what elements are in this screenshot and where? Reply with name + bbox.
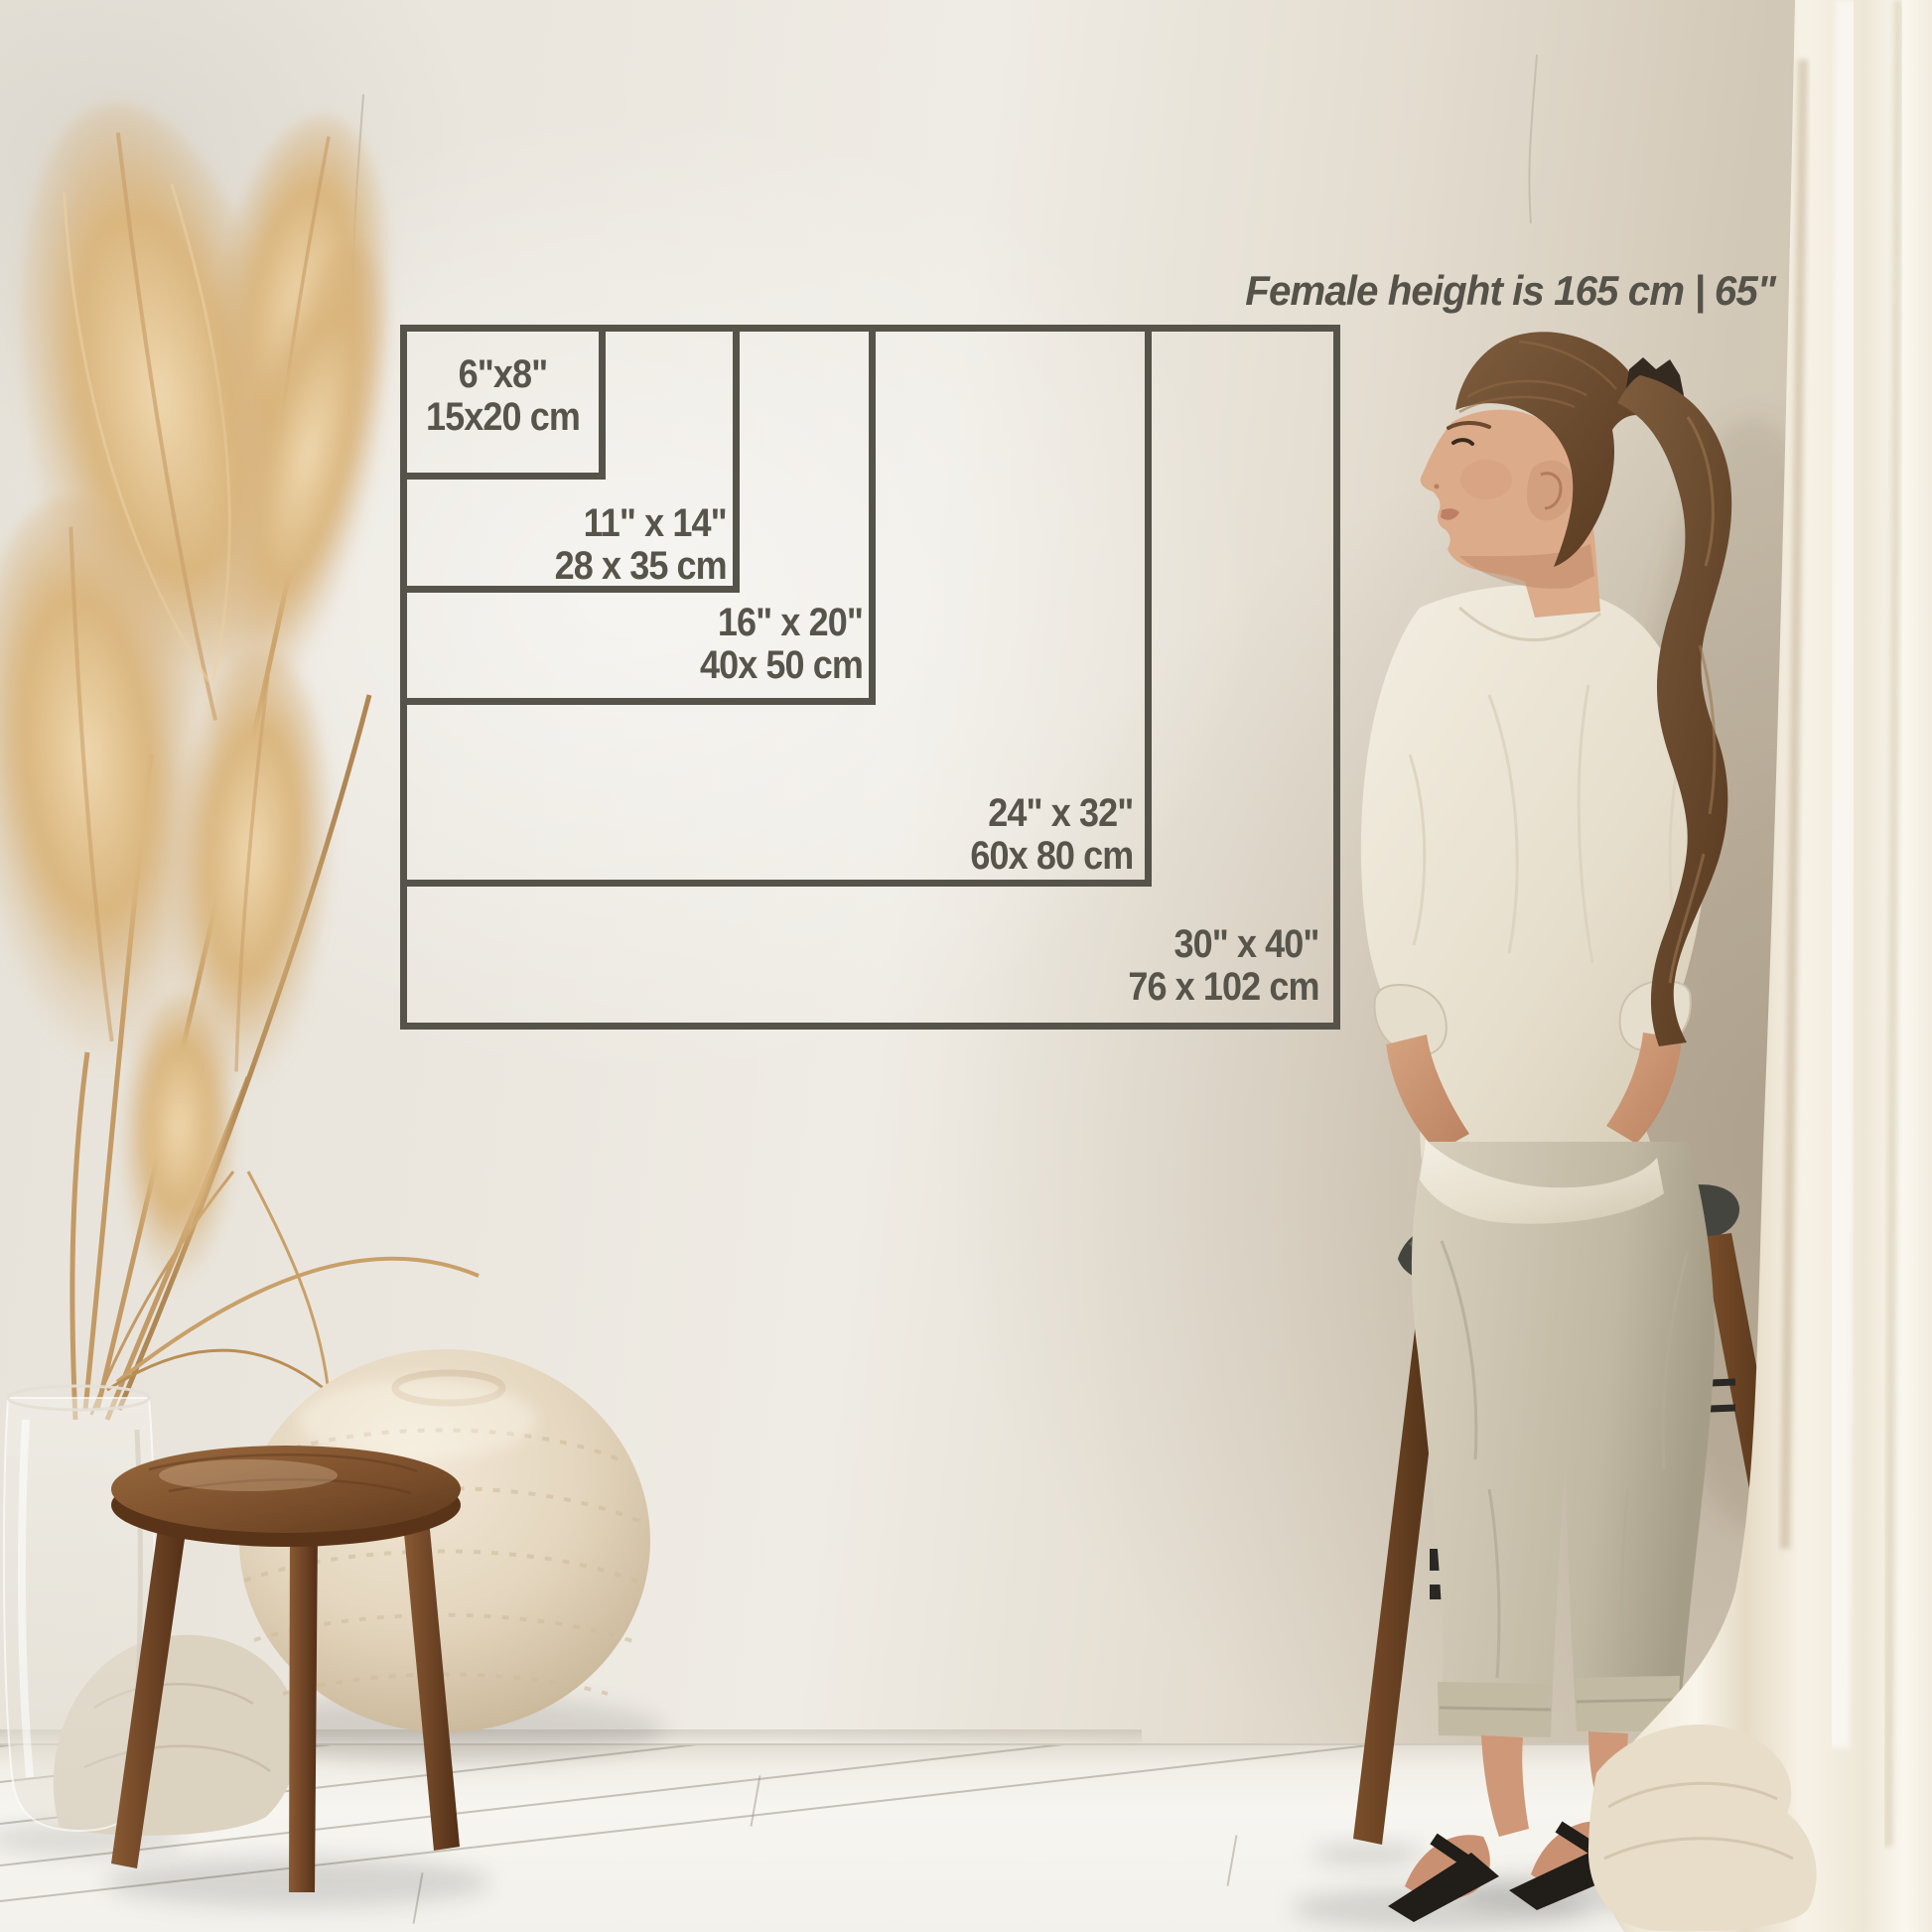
size-label-11x14: 11" x 14" 28 x 35 cm	[440, 502, 734, 588]
wall-crack	[1529, 55, 1537, 223]
pampas-plumes	[0, 81, 422, 1293]
size-cm: 76 x 102 cm	[499, 966, 1318, 1009]
size-cm: 60x 80 cm	[481, 835, 1133, 878]
size-label-30x40: 30" x 40" 76 x 102 cm	[499, 923, 1333, 1009]
print-size-guide-mockup: 6"x8" 15x20 cm 11" x 14" 28 x 35 cm 16" …	[0, 0, 1932, 1932]
size-label-24x32: 24" x 32" 60x 80 cm	[481, 792, 1146, 878]
size-inches: 6"x8"	[410, 353, 595, 396]
size-cm: 28 x 35 cm	[440, 545, 727, 588]
female-height-caption: Female height is 165 cm | 65"	[1203, 270, 1775, 312]
size-inches: 24" x 32"	[481, 792, 1133, 835]
nostril	[1435, 484, 1440, 489]
pants	[1412, 1142, 1715, 1731]
size-inches: 16" x 20"	[454, 602, 863, 644]
size-cm: 15x20 cm	[410, 396, 595, 439]
size-inches: 11" x 14"	[440, 502, 727, 545]
cheek	[1460, 460, 1512, 499]
size-cm: 40x 50 cm	[454, 644, 863, 687]
left-ankle	[1481, 1735, 1529, 1837]
size-label-6x8: 6"x8" 15x20 cm	[410, 353, 595, 439]
size-label-16x20: 16" x 20" 40x 50 cm	[454, 602, 872, 687]
size-inches: 30" x 40"	[499, 923, 1318, 966]
